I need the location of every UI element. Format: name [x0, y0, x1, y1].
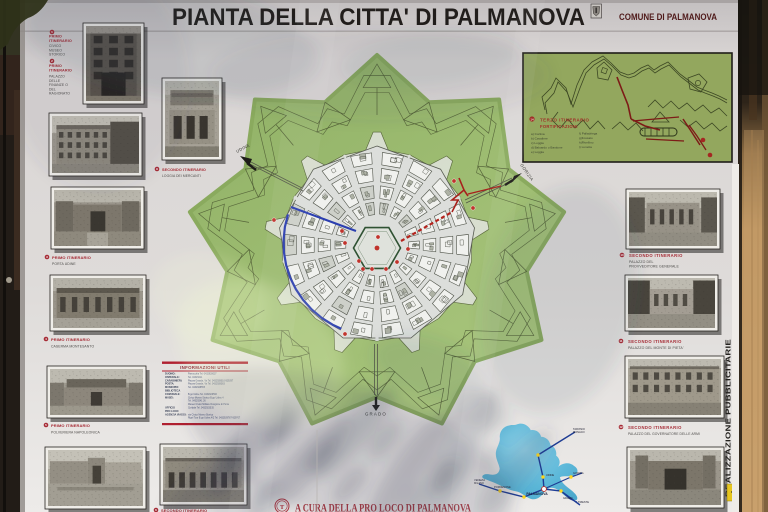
svg-text:b) Cavaliere: b) Cavaliere [531, 137, 548, 141]
svg-text:AGENZIA VIAGGI:: AGENZIA VIAGGI: [165, 413, 187, 416]
svg-text:COMUNE DI PALMANOVA: COMUNE DI PALMANOVA [619, 12, 717, 22]
svg-text:CASERMA MONTESANTO: CASERMA MONTESANTO [51, 345, 94, 349]
svg-text:UDINE: UDINE [546, 473, 554, 477]
svg-text:PALAZZO DEL MONTE DI PIETA': PALAZZO DEL MONTE DI PIETA' [628, 346, 684, 350]
svg-text:c) Loggia: c) Loggia [531, 141, 544, 145]
svg-text:REALIZZAZIONE PUBBLICITARIE: REALIZZAZIONE PUBBLICITARIE [726, 339, 733, 497]
svg-text:GORIZIA: GORIZIA [573, 471, 584, 475]
svg-text:PORTA UDINE: PORTA UDINE [52, 262, 76, 266]
svg-text:d) Baluardo o Bastione: d) Baluardo o Bastione [531, 146, 563, 150]
svg-text:POLVERIERA NAPOLEONICA: POLVERIERA NAPOLEONICA [51, 431, 101, 435]
svg-text:SECONDO ITINERARIO: SECONDO ITINERARIO [628, 425, 682, 430]
svg-text:a) Cortina: a) Cortina [531, 132, 545, 136]
svg-text:SECONDO ITINERARIO: SECONDO ITINERARIO [162, 168, 206, 172]
svg-text:MONACO: MONACO [573, 430, 585, 434]
svg-text:FORTIFICAZIONI: FORTIFICAZIONI [540, 124, 578, 129]
svg-text:14: 14 [530, 117, 534, 121]
svg-text:e) Loggia: e) Loggia [531, 150, 544, 154]
svg-text:PRIMO ITINERARIO: PRIMO ITINERARIO [51, 423, 90, 428]
svg-text:MUSEI:: MUSEI: [165, 396, 174, 399]
svg-text:PRIMO ITINERARIO: PRIMO ITINERARIO [52, 255, 91, 260]
svg-text:GRADO: GRADO [563, 496, 573, 500]
svg-text:f) Palladriega: f) Palladriega [579, 132, 598, 136]
svg-text:SECONDO ITINERARIO: SECONDO ITINERARIO [628, 339, 682, 344]
svg-text:g)Fossato: g)Fossato [579, 136, 593, 140]
svg-text:TERZO ITINERARIO: TERZO ITINERARIO [540, 118, 590, 123]
svg-text:PALMANOVA: PALMANOVA [526, 492, 548, 496]
svg-text:h)Rivellino: h)Rivellino [579, 141, 594, 145]
svg-text:i) Lunetta: i) Lunetta [579, 145, 592, 149]
svg-text:PRIMO ITINERARIO: PRIMO ITINERARIO [51, 337, 90, 342]
svg-text:LOGGIA DEI MERCANTI: LOGGIA DEI MERCANTI [162, 174, 201, 178]
svg-text:PALAZZO DEL GOVERNATORE DELLE: PALAZZO DEL GOVERNATORE DELLE ARMI [628, 432, 700, 436]
svg-text:TRIESTE: TRIESTE [578, 500, 589, 504]
svg-text:12: 12 [619, 425, 623, 429]
